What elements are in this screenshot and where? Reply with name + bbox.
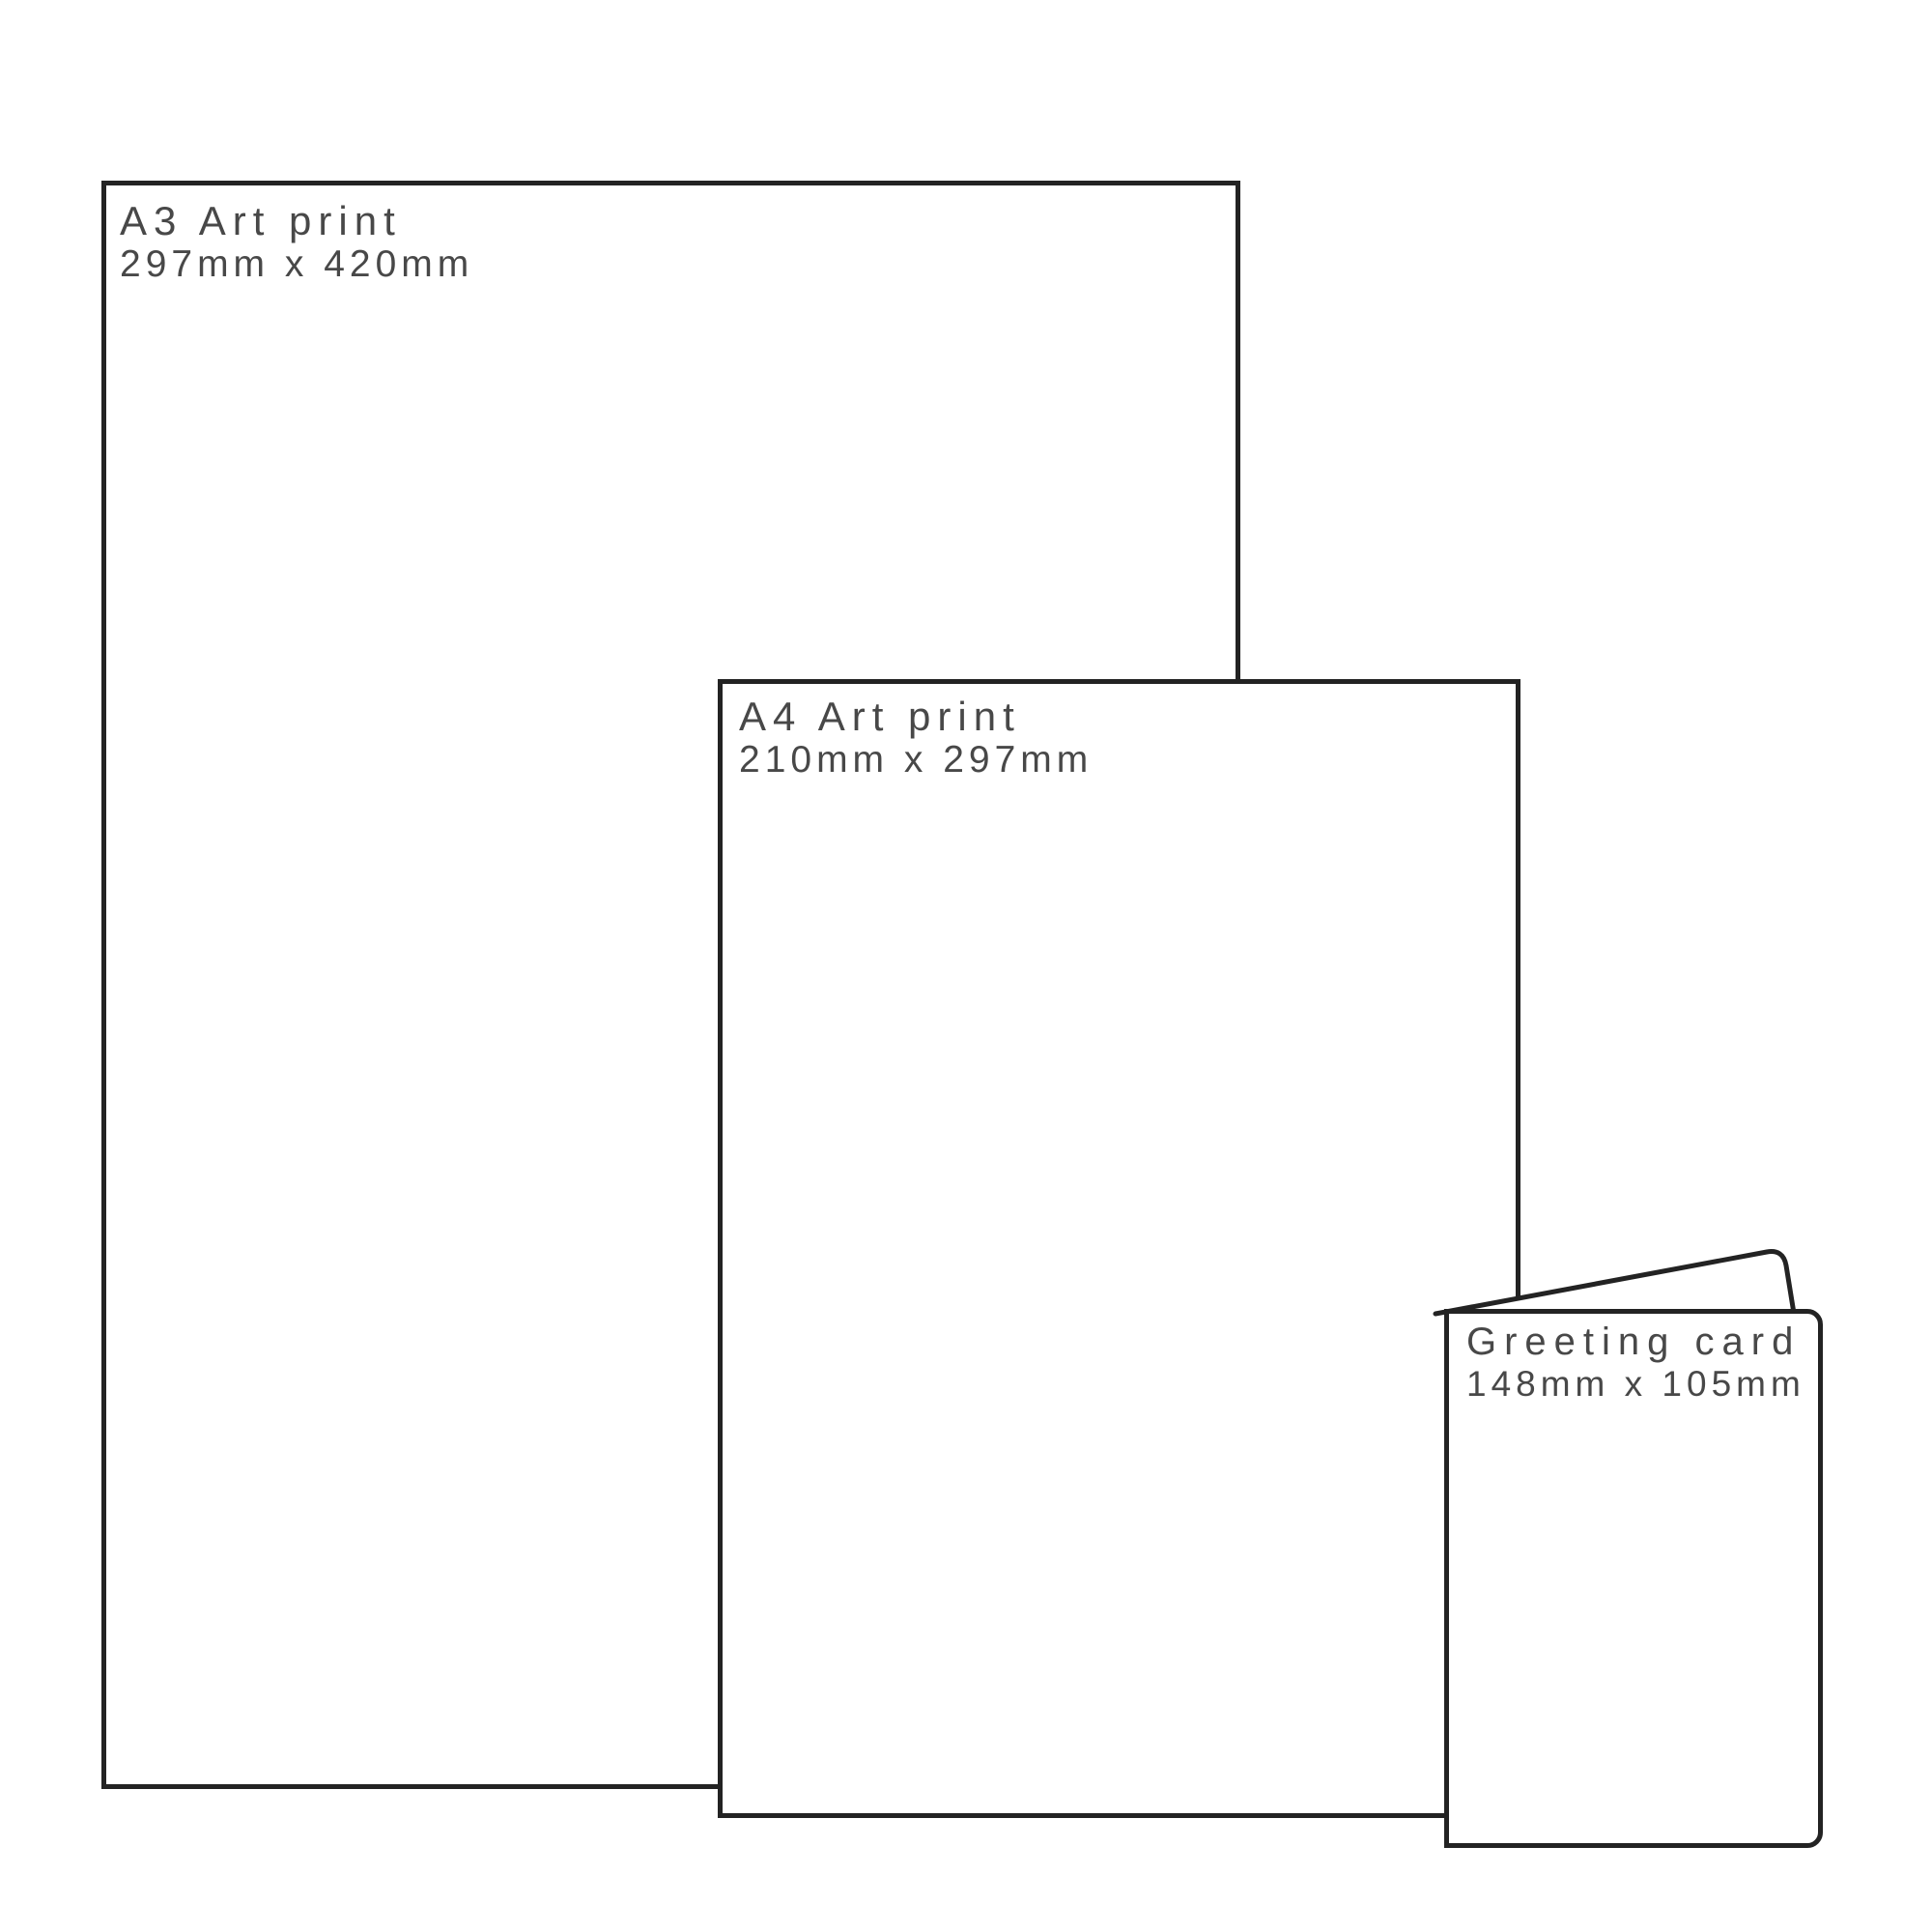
greeting-card-label: Greeting card 148mm x 105mm: [1466, 1322, 1805, 1402]
greeting-card-front: Greeting card 148mm x 105mm: [1444, 1309, 1823, 1848]
a4-dimensions: 210mm x 297mm: [739, 741, 1093, 779]
print-size-comparison-diagram: A3 Art print 297mm x 420mm A4 Art print …: [0, 0, 1932, 1932]
a3-dimensions: 297mm x 420mm: [120, 245, 473, 283]
a4-label: A4 Art print 210mm x 297mm: [739, 696, 1093, 779]
greeting-card-title: Greeting card: [1466, 1322, 1805, 1361]
a3-label: A3 Art print 297mm x 420mm: [120, 201, 473, 283]
a3-title: A3 Art print: [120, 201, 473, 241]
greeting-card-dimensions: 148mm x 105mm: [1466, 1366, 1805, 1402]
a4-title: A4 Art print: [739, 696, 1093, 737]
